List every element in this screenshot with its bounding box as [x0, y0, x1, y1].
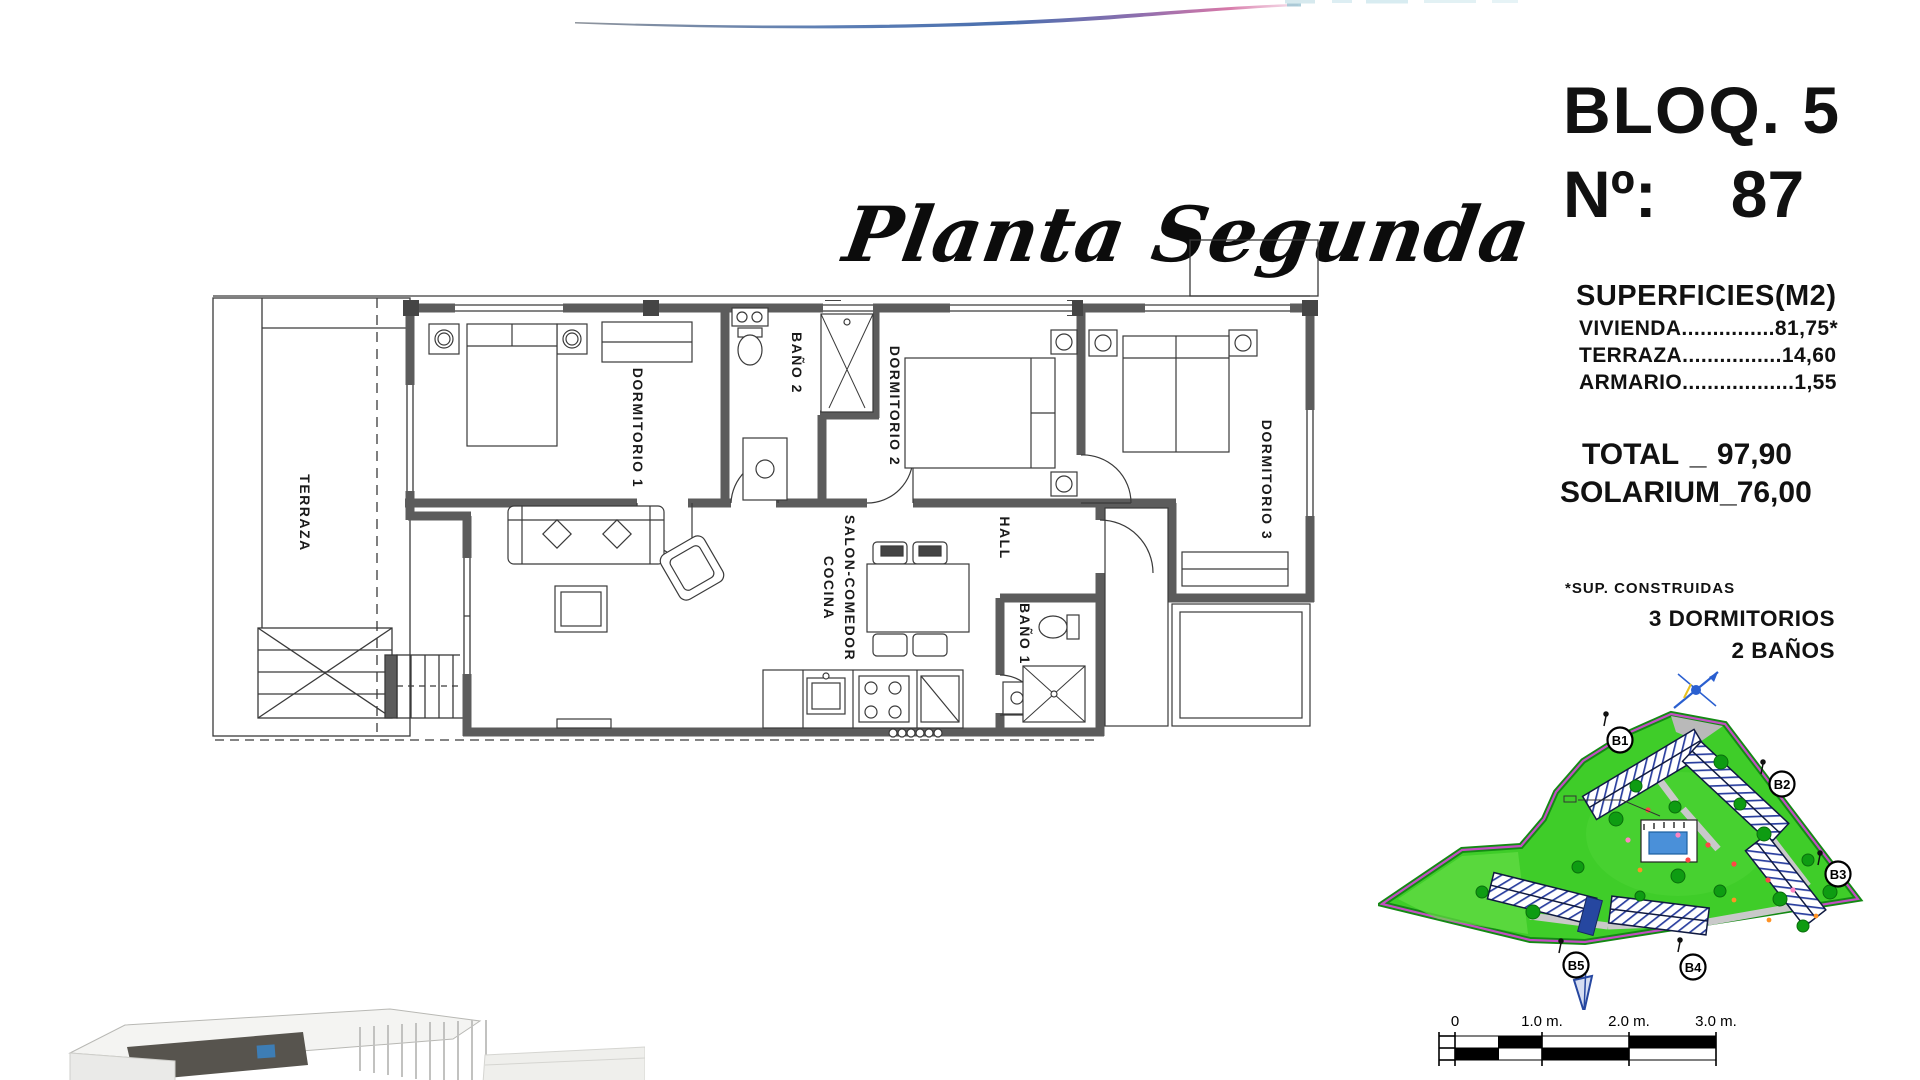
scale-segments	[1455, 1036, 1716, 1060]
scale-bar: 0 1.0 m. 2.0 m. 3.0 m.	[1425, 1010, 1745, 1080]
scale-3m: 3.0 m.	[1695, 1013, 1737, 1030]
room-dormitorio-2	[905, 330, 1077, 496]
label-dormitorio-2: DORMITORIO 2	[887, 346, 903, 466]
label-b4: B4	[1685, 960, 1702, 975]
floor-plan: TERRAZA DORMITORIO 1 BAÑO 2 DORMITORIO 2…	[205, 228, 1340, 768]
label-salon-line1: SALON-COMEDOR	[842, 515, 858, 661]
dining-set	[867, 542, 969, 656]
surface-row-terraza: TERRAZA................14,60	[1579, 342, 1838, 369]
plan-sheet: Planta Segunda BLOQ. 5 Nº: 87 SUPERFICIE…	[0, 0, 1920, 1080]
surfaces-table: VIVIENDA...............81,75* TERRAZA...…	[1579, 315, 1838, 396]
cropped-logo-fragments	[1285, 0, 1518, 7]
label-b1: B1	[1612, 733, 1629, 748]
surface-row-armario: ARMARIO..................1,55	[1579, 369, 1838, 396]
label-bano-2: BAÑO 2	[789, 332, 806, 394]
kitchen-counter	[763, 670, 963, 737]
salon-furniture	[508, 506, 727, 728]
compass-icon	[1674, 672, 1718, 708]
site-plan: B1 B2 B3 B4 B5	[1378, 664, 1878, 1010]
label-dormitorio-3: DORMITORIO 3	[1259, 420, 1275, 540]
total-row: TOTAL_97,90	[1582, 438, 1792, 472]
surfaces-footnote: *SUP. CONSTRUIDAS	[1565, 580, 1735, 597]
label-salon-line2: COCINA	[821, 556, 837, 620]
scale-0: 0	[1451, 1013, 1459, 1030]
decorative-swoosh	[0, 0, 1920, 46]
terrace-stairs	[258, 628, 468, 718]
surfaces-heading: SUPERFICIES(M2)	[1576, 280, 1836, 313]
block-label: BLOQ. 5	[1563, 72, 1841, 148]
label-terraza: TERRAZA	[297, 474, 313, 551]
label-dormitorio-1: DORMITORIO 1	[630, 368, 646, 488]
room-dormitorio-1	[429, 322, 692, 446]
number-label: Nº:	[1563, 156, 1657, 232]
scale-1m: 1.0 m.	[1521, 1013, 1563, 1030]
label-hall: HALL	[997, 516, 1013, 559]
unit-number-line: Nº: 87	[1563, 156, 1804, 232]
label-b2: B2	[1774, 777, 1791, 792]
swoosh-ribbon	[575, 4, 1298, 28]
room-bano-1	[1003, 615, 1085, 722]
label-b3: B3	[1830, 867, 1847, 882]
label-bano-1: BAÑO 1	[1017, 603, 1034, 665]
label-b5: B5	[1568, 958, 1585, 973]
bedrooms-count: 3 DORMITORIOS	[1635, 603, 1835, 635]
scale-2m: 2.0 m.	[1608, 1013, 1650, 1030]
room-dormitorio-3	[1089, 330, 1288, 586]
solarium-row: SOLARIUM_76,00	[1560, 476, 1802, 510]
bathrooms-count: 2 BAÑOS	[1635, 635, 1835, 667]
building-render-image	[55, 1005, 645, 1080]
number-value: 87	[1731, 156, 1804, 232]
pool	[1641, 820, 1697, 862]
surface-row-vivienda: VIVIENDA...............81,75*	[1579, 315, 1838, 342]
program-block: 3 DORMITORIOS 2 BAÑOS	[1635, 603, 1835, 667]
stairwell-landing	[1105, 508, 1310, 726]
